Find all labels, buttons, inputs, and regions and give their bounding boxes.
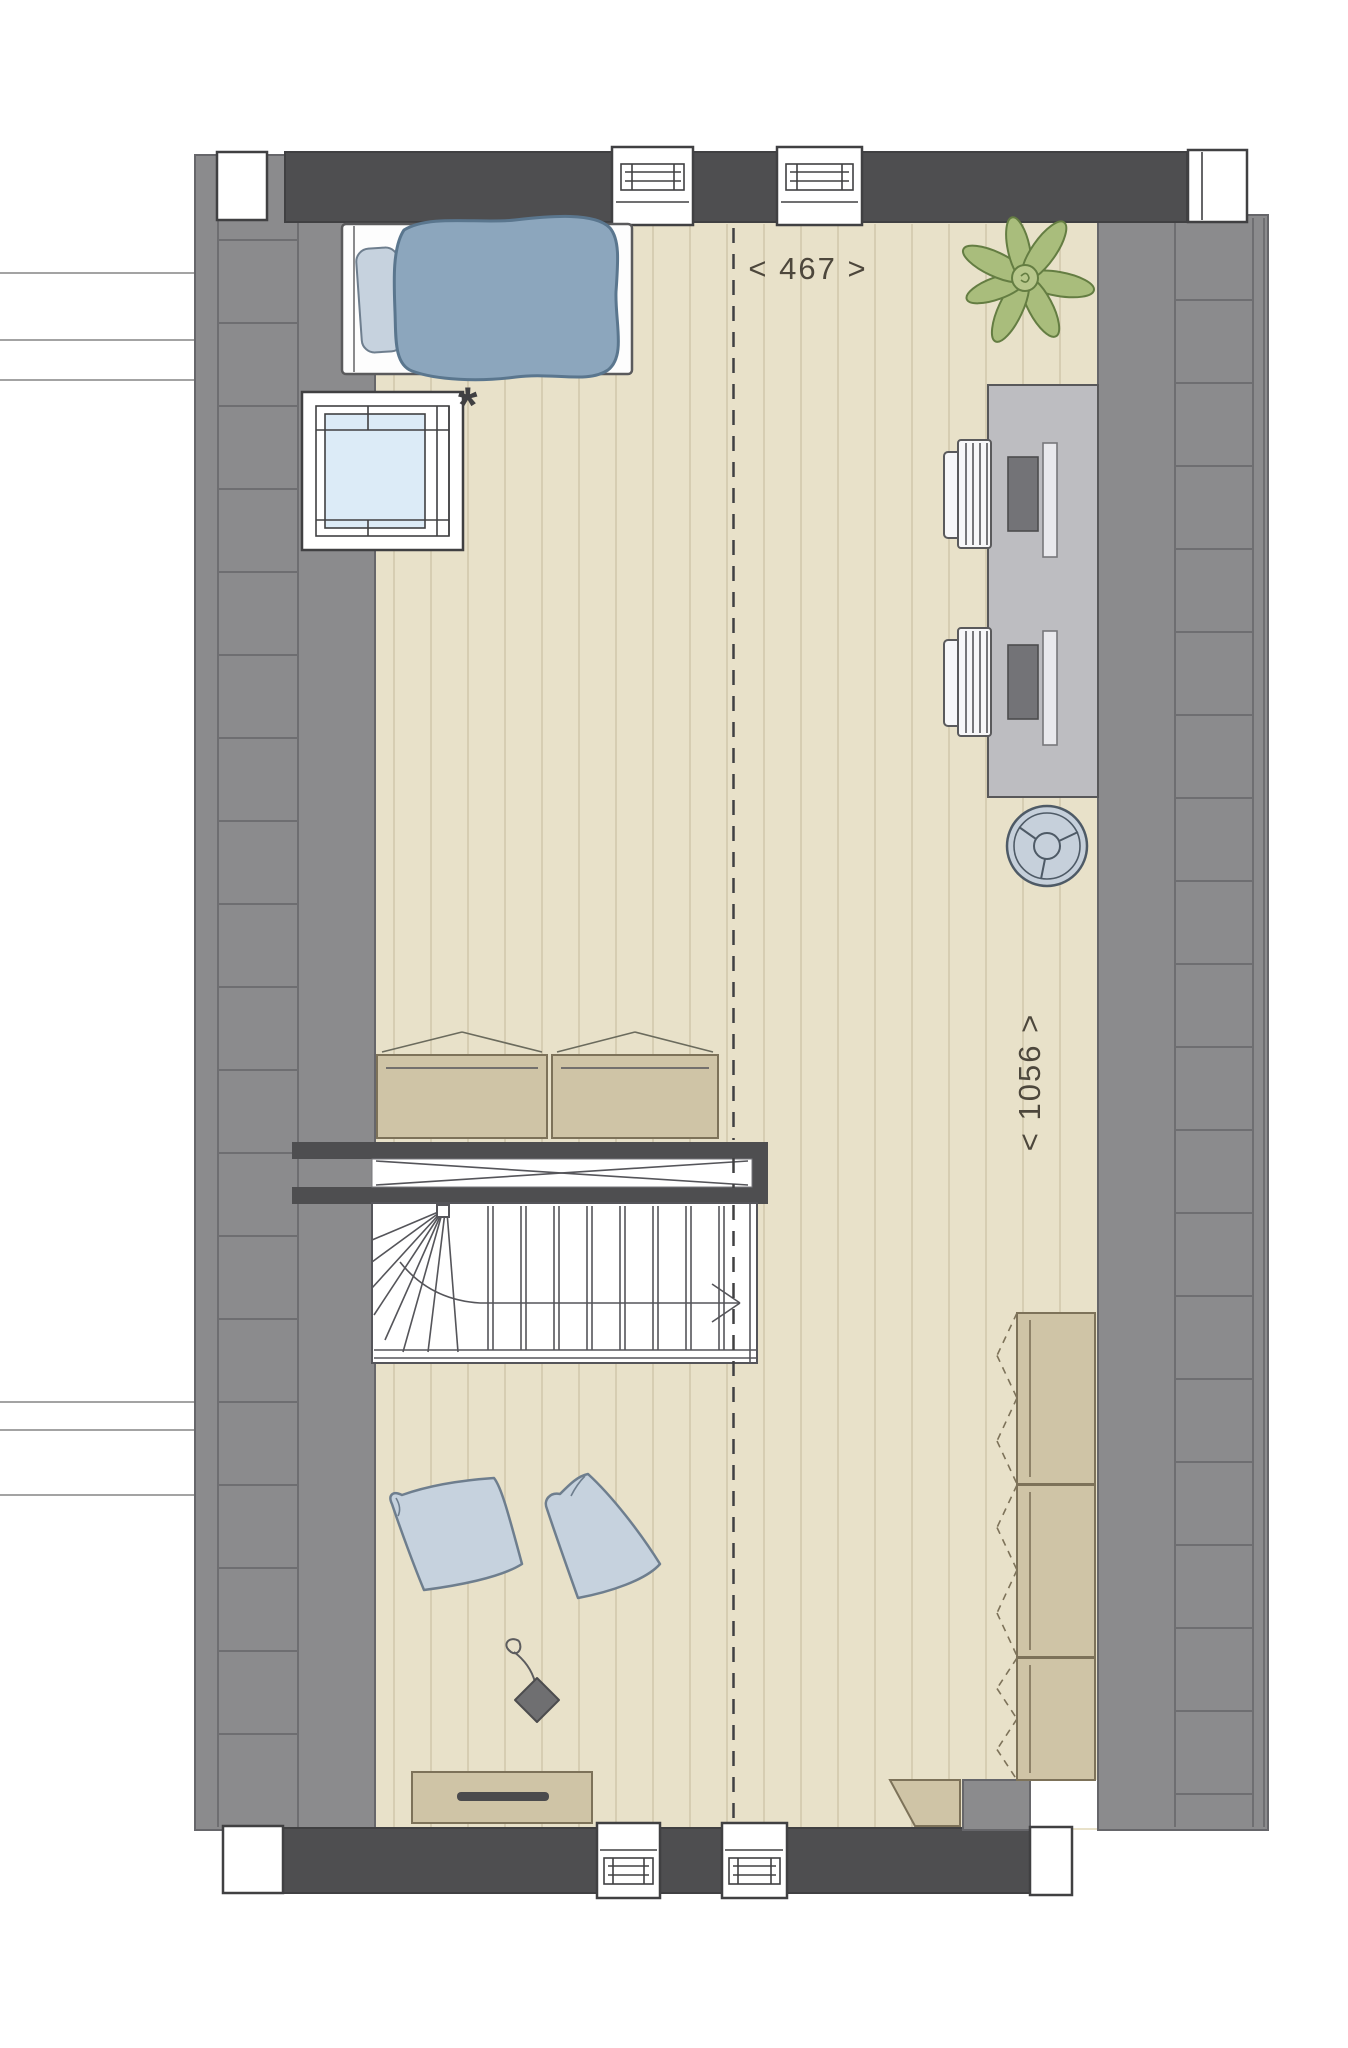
dormer-window	[777, 147, 862, 225]
bed	[342, 216, 632, 379]
roof-window-glass	[325, 414, 425, 528]
top-left-chimney-block	[217, 152, 267, 220]
dormer-window	[722, 1823, 787, 1898]
depth-dimension-label: < 1056 >	[1012, 1013, 1047, 1151]
desk-accessory	[1043, 631, 1057, 745]
desk-chair	[944, 628, 991, 736]
width-dimension-label: < 467 >	[748, 251, 867, 286]
dormer-window	[597, 1823, 660, 1898]
right-wall-body	[1098, 215, 1268, 1830]
bottom-right-chimney-block	[1030, 1827, 1072, 1895]
cabinet-unit	[1017, 1313, 1095, 1484]
railing-post	[752, 1142, 768, 1204]
desk-chair	[944, 440, 991, 548]
bottom-left-chimney-block	[223, 1826, 283, 1893]
top-right-chimney-block	[1188, 150, 1247, 222]
bottom-right-wall-pier	[963, 1780, 1030, 1830]
window-marker-note: *	[458, 377, 478, 433]
cabinet-unit	[1017, 1485, 1095, 1657]
floor-plan: *	[0, 0, 1348, 2048]
stair-newel	[437, 1205, 449, 1217]
sideboard-handle	[457, 1792, 549, 1801]
dormer-window	[612, 147, 693, 225]
staircase	[372, 1203, 757, 1363]
exterior-eave-lines	[0, 273, 195, 1495]
bed-duvet	[394, 216, 618, 379]
railing-bar	[292, 1142, 768, 1159]
laptop	[1008, 457, 1038, 531]
roof-window	[302, 392, 463, 550]
desk-accessory	[1043, 443, 1057, 557]
railing-bar	[292, 1187, 768, 1204]
bottom-right-exterior-notch	[1031, 1780, 1097, 1828]
plant-pot-center	[1012, 265, 1038, 291]
sideboard	[412, 1772, 592, 1823]
fan	[1007, 806, 1087, 886]
floor-plan-canvas: *	[0, 0, 1348, 2048]
laptop	[1008, 645, 1038, 719]
top-facade-wall	[285, 152, 1187, 222]
cabinet-unit	[1017, 1658, 1095, 1780]
right-roof-wall	[1098, 215, 1268, 1830]
